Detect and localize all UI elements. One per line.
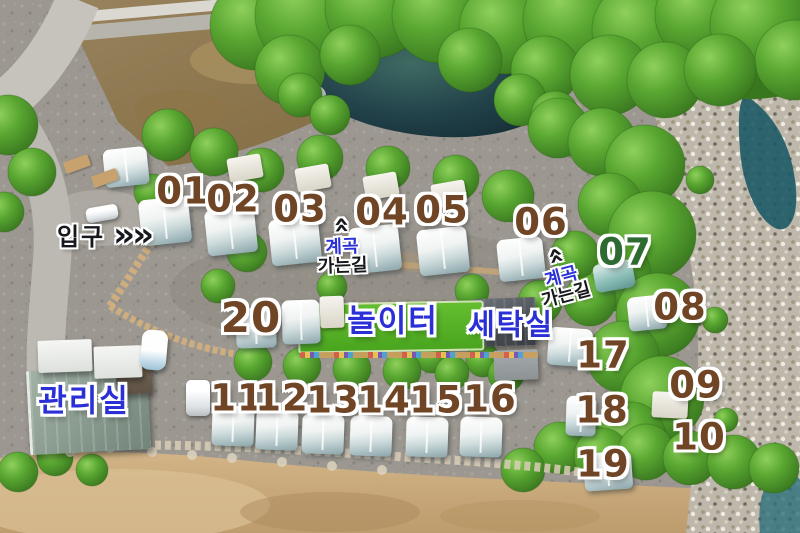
entrance-label: 입구 [57, 225, 105, 249]
site-label-08: 08 [653, 289, 707, 326]
site-label-18: 18 [575, 392, 629, 429]
labels-layer: 입구 »» 01 02 03 04 05 06 07 08 09 10 11 1… [0, 0, 800, 533]
campground-aerial-map: 입구 »» 01 02 03 04 05 06 07 08 09 10 11 1… [0, 0, 800, 533]
site-label-19: 19 [576, 446, 630, 483]
site-label-07: 07 [598, 234, 652, 271]
site-label-13: 13 [306, 382, 360, 419]
office-label: 관리실 [38, 387, 130, 418]
site-label-02: 02 [206, 181, 260, 218]
site-label-15: 15 [409, 382, 463, 419]
laundry-label: 세탁실 [468, 311, 554, 340]
playground-label: 놀이터 [347, 307, 439, 338]
valley-sign-top-line2: 가는길 [318, 257, 368, 277]
site-label-01: 01 [156, 173, 210, 210]
valley-sign-right: » 계곡 가는길 [529, 241, 592, 311]
site-label-10: 10 [672, 419, 726, 456]
site-label-16: 16 [463, 381, 517, 418]
entrance-arrow-icon: »» [113, 218, 151, 252]
site-label-09: 09 [669, 367, 723, 404]
site-label-17: 17 [576, 337, 630, 374]
chevron-up-icon: » [330, 201, 352, 251]
site-label-12: 12 [255, 380, 309, 417]
site-label-14: 14 [357, 382, 411, 419]
site-label-20: 20 [221, 297, 281, 339]
entrance-marker: 입구 »» [57, 222, 151, 252]
site-label-05: 05 [415, 192, 469, 229]
valley-sign-top: » 계곡 가는길 [316, 216, 368, 277]
